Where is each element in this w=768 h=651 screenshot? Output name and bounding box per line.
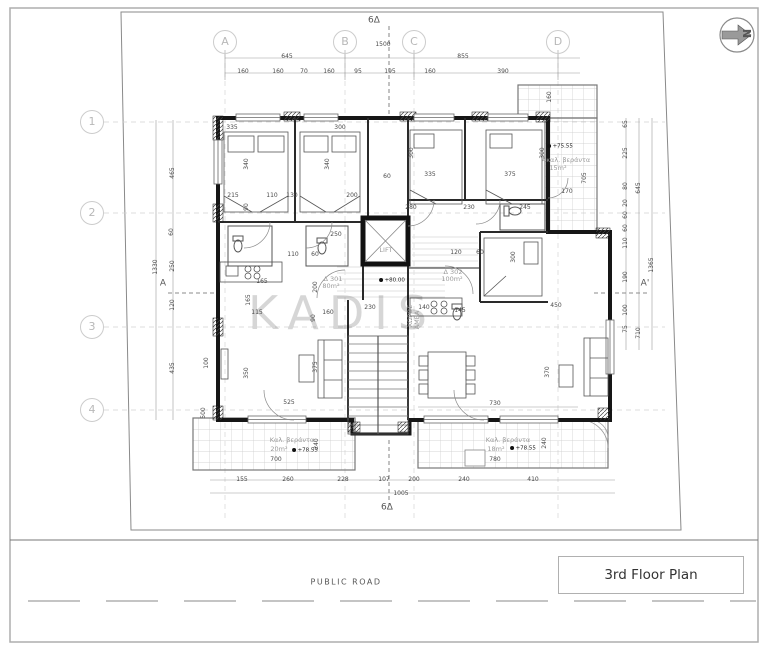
dining-table [419,352,475,398]
title-block: 3rd Floor Plan [558,556,744,594]
floor-plan-sheet: KADIS 645855160160701609519516039015006Δ… [0,0,768,651]
tv-unit [221,349,228,379]
bed [224,132,288,212]
kitchen-counter [220,262,282,282]
page-title: 3rd Floor Plan [604,567,697,583]
lift-shaft [363,218,408,264]
sofa [318,340,342,398]
bed [484,238,542,296]
bed [410,130,462,204]
bed [486,130,542,204]
stairs [348,336,408,434]
watermark: KADIS [248,286,437,340]
north-letter: N [740,29,753,38]
planter [465,450,485,466]
coffee-table [299,355,314,382]
sofa [584,338,608,396]
road-label: PUBLIC ROAD [311,578,382,587]
bed [300,132,360,212]
coffee-table [559,365,573,387]
